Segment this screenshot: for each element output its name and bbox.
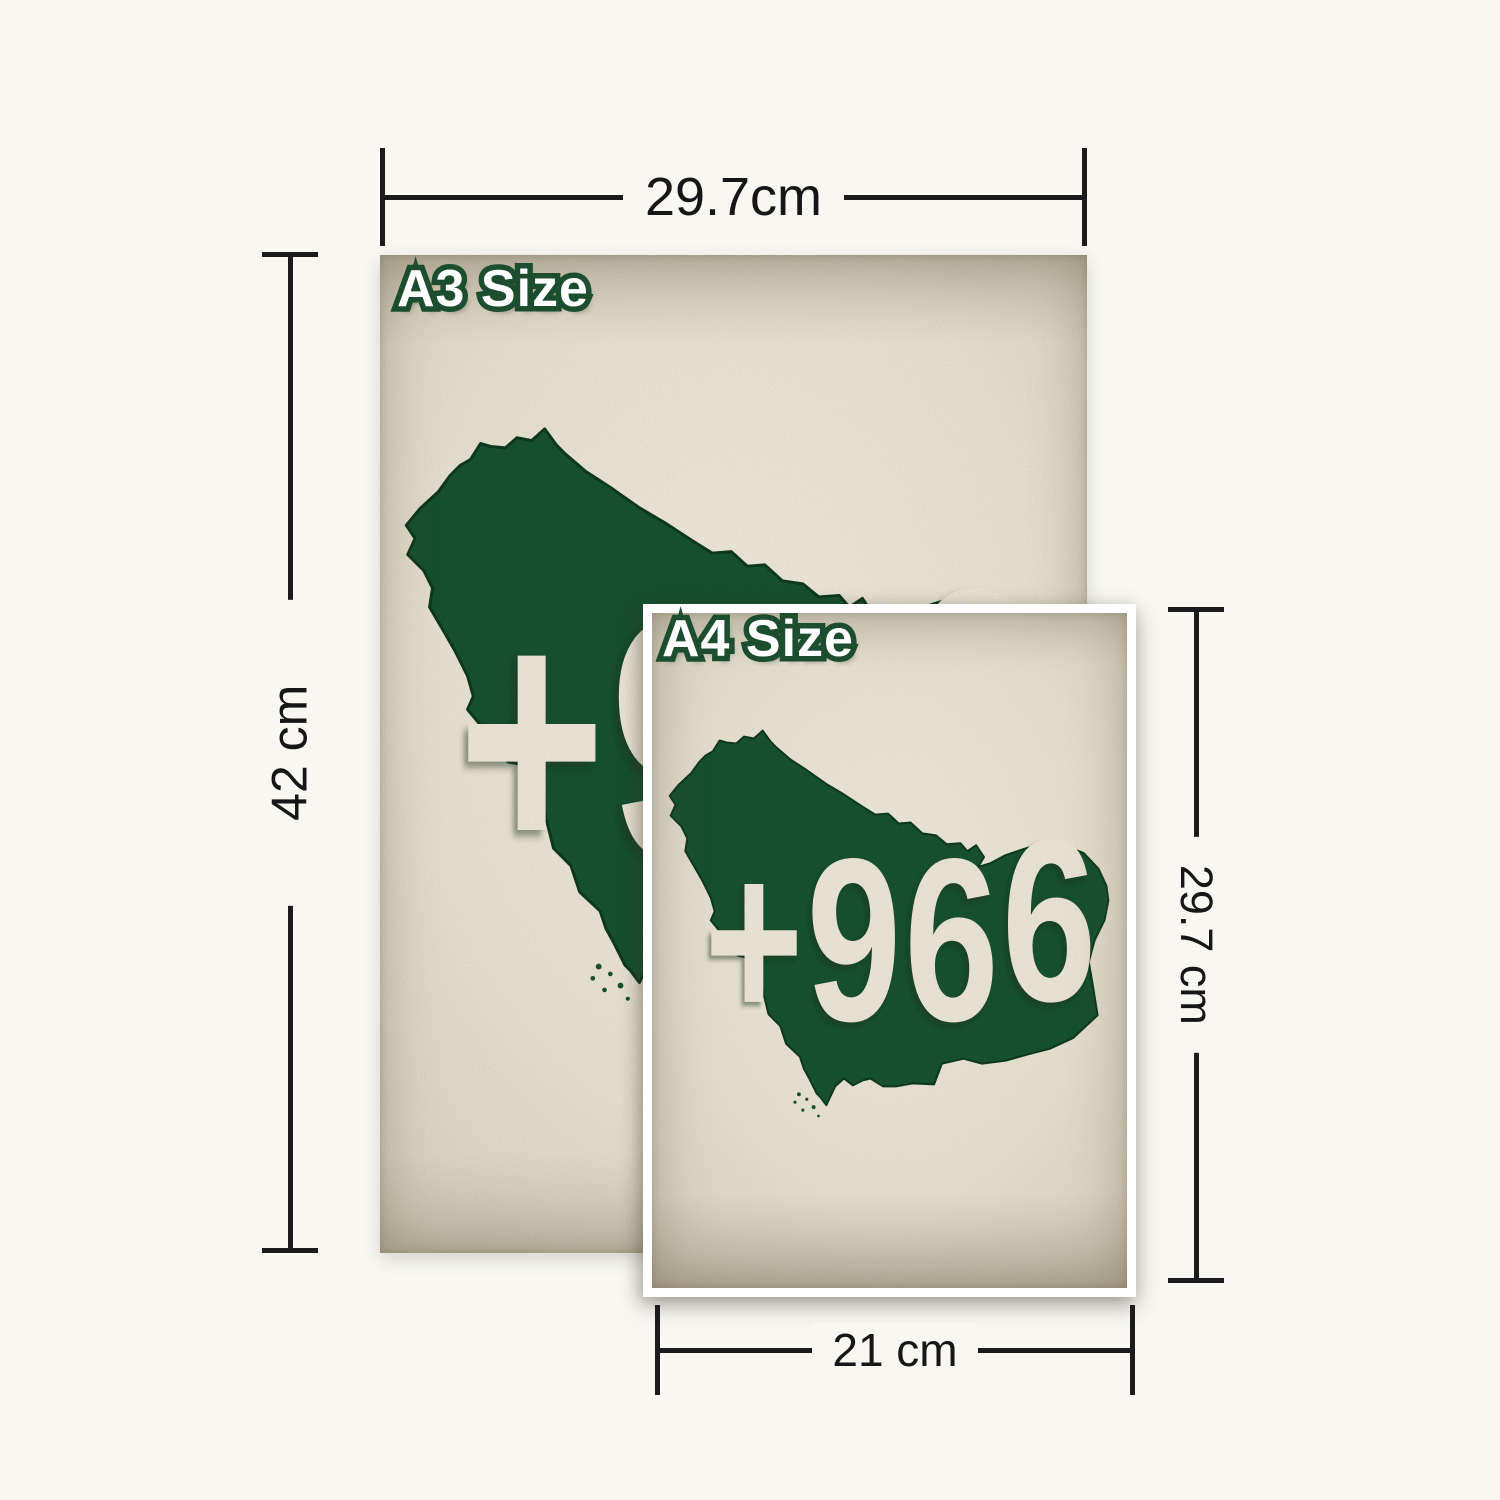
a3-size-label-text: A3 Size — [397, 260, 589, 318]
a3-width-value: 29.7cm — [623, 166, 844, 228]
a4-size-label-text: A4 Size — [662, 610, 854, 668]
dimension-a4-height: 29.7 cm — [1168, 607, 1224, 1283]
a4-poster-artwork — [652, 613, 1127, 1288]
a4-height-value: 29.7 cm — [1170, 837, 1222, 1053]
dimension-a3-height: 42 cm — [262, 252, 318, 1253]
a3-height-value: 42 cm — [261, 599, 319, 905]
a4-size-label: A4 Size A4 Size — [662, 613, 854, 665]
a3-size-label: A3 Size A3 Size — [397, 263, 589, 315]
a4-width-value: 21 cm — [812, 1324, 977, 1377]
dimension-a4-width: 21 cm — [655, 1305, 1135, 1395]
product-size-comparison-image: +966 +966 A3 Size A3 Size A4 Size A4 Siz… — [0, 0, 1500, 1500]
a4-poster — [643, 604, 1136, 1297]
dimension-a3-width: 29.7cm — [380, 148, 1087, 246]
